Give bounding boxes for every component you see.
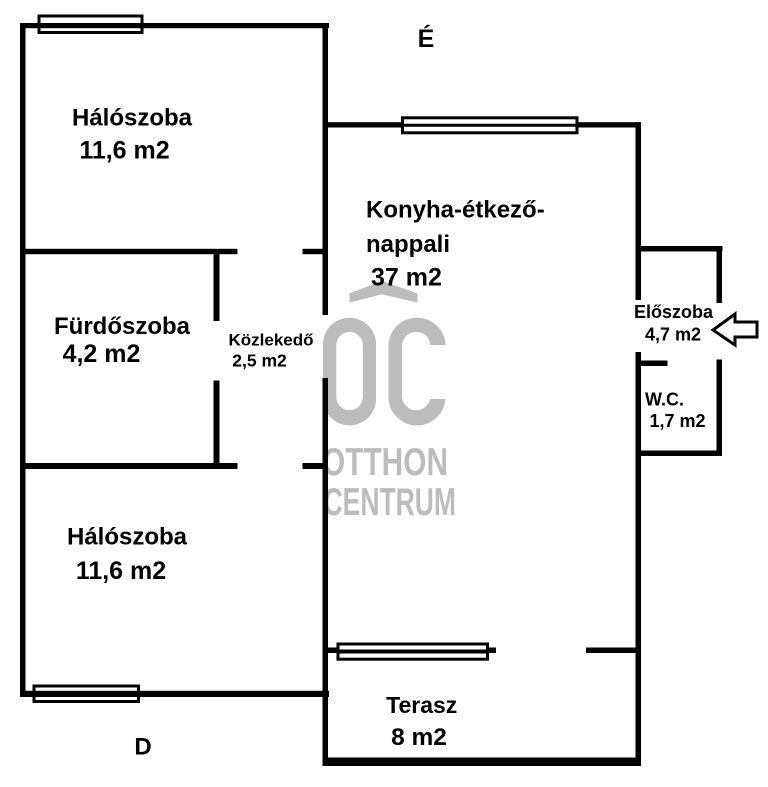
svg-text:Közlekedő: Közlekedő xyxy=(228,331,313,350)
svg-text:CENTRUM: CENTRUM xyxy=(324,481,457,524)
svg-text:2,5 m2: 2,5 m2 xyxy=(232,351,287,371)
svg-text:D: D xyxy=(134,734,151,761)
svg-text:11,6 m2: 11,6 m2 xyxy=(79,137,169,165)
svg-text:W.C.: W.C. xyxy=(645,390,684,410)
svg-text:37 m2: 37 m2 xyxy=(371,264,442,292)
svg-text:4,7 m2: 4,7 m2 xyxy=(645,325,701,345)
svg-text:4,2 m2: 4,2 m2 xyxy=(63,340,141,368)
svg-text:8 m2: 8 m2 xyxy=(391,724,447,751)
svg-text:11,6 m2: 11,6 m2 xyxy=(76,557,166,585)
svg-text:Hálószoba: Hálószoba xyxy=(67,524,188,551)
svg-text:OTTHON: OTTHON xyxy=(322,441,448,484)
svg-text:Fürdőszoba: Fürdőszoba xyxy=(54,313,191,340)
svg-text:Konyha-étkező-: Konyha-étkező- xyxy=(366,197,545,224)
svg-text:Előszoba: Előszoba xyxy=(634,302,714,322)
svg-text:1,7 m2: 1,7 m2 xyxy=(649,411,705,431)
svg-text:Terasz: Terasz xyxy=(386,692,457,718)
svg-text:Hálószoba: Hálószoba xyxy=(72,105,193,132)
svg-text:É: É xyxy=(418,24,435,53)
svg-text:nappali: nappali xyxy=(366,231,450,258)
